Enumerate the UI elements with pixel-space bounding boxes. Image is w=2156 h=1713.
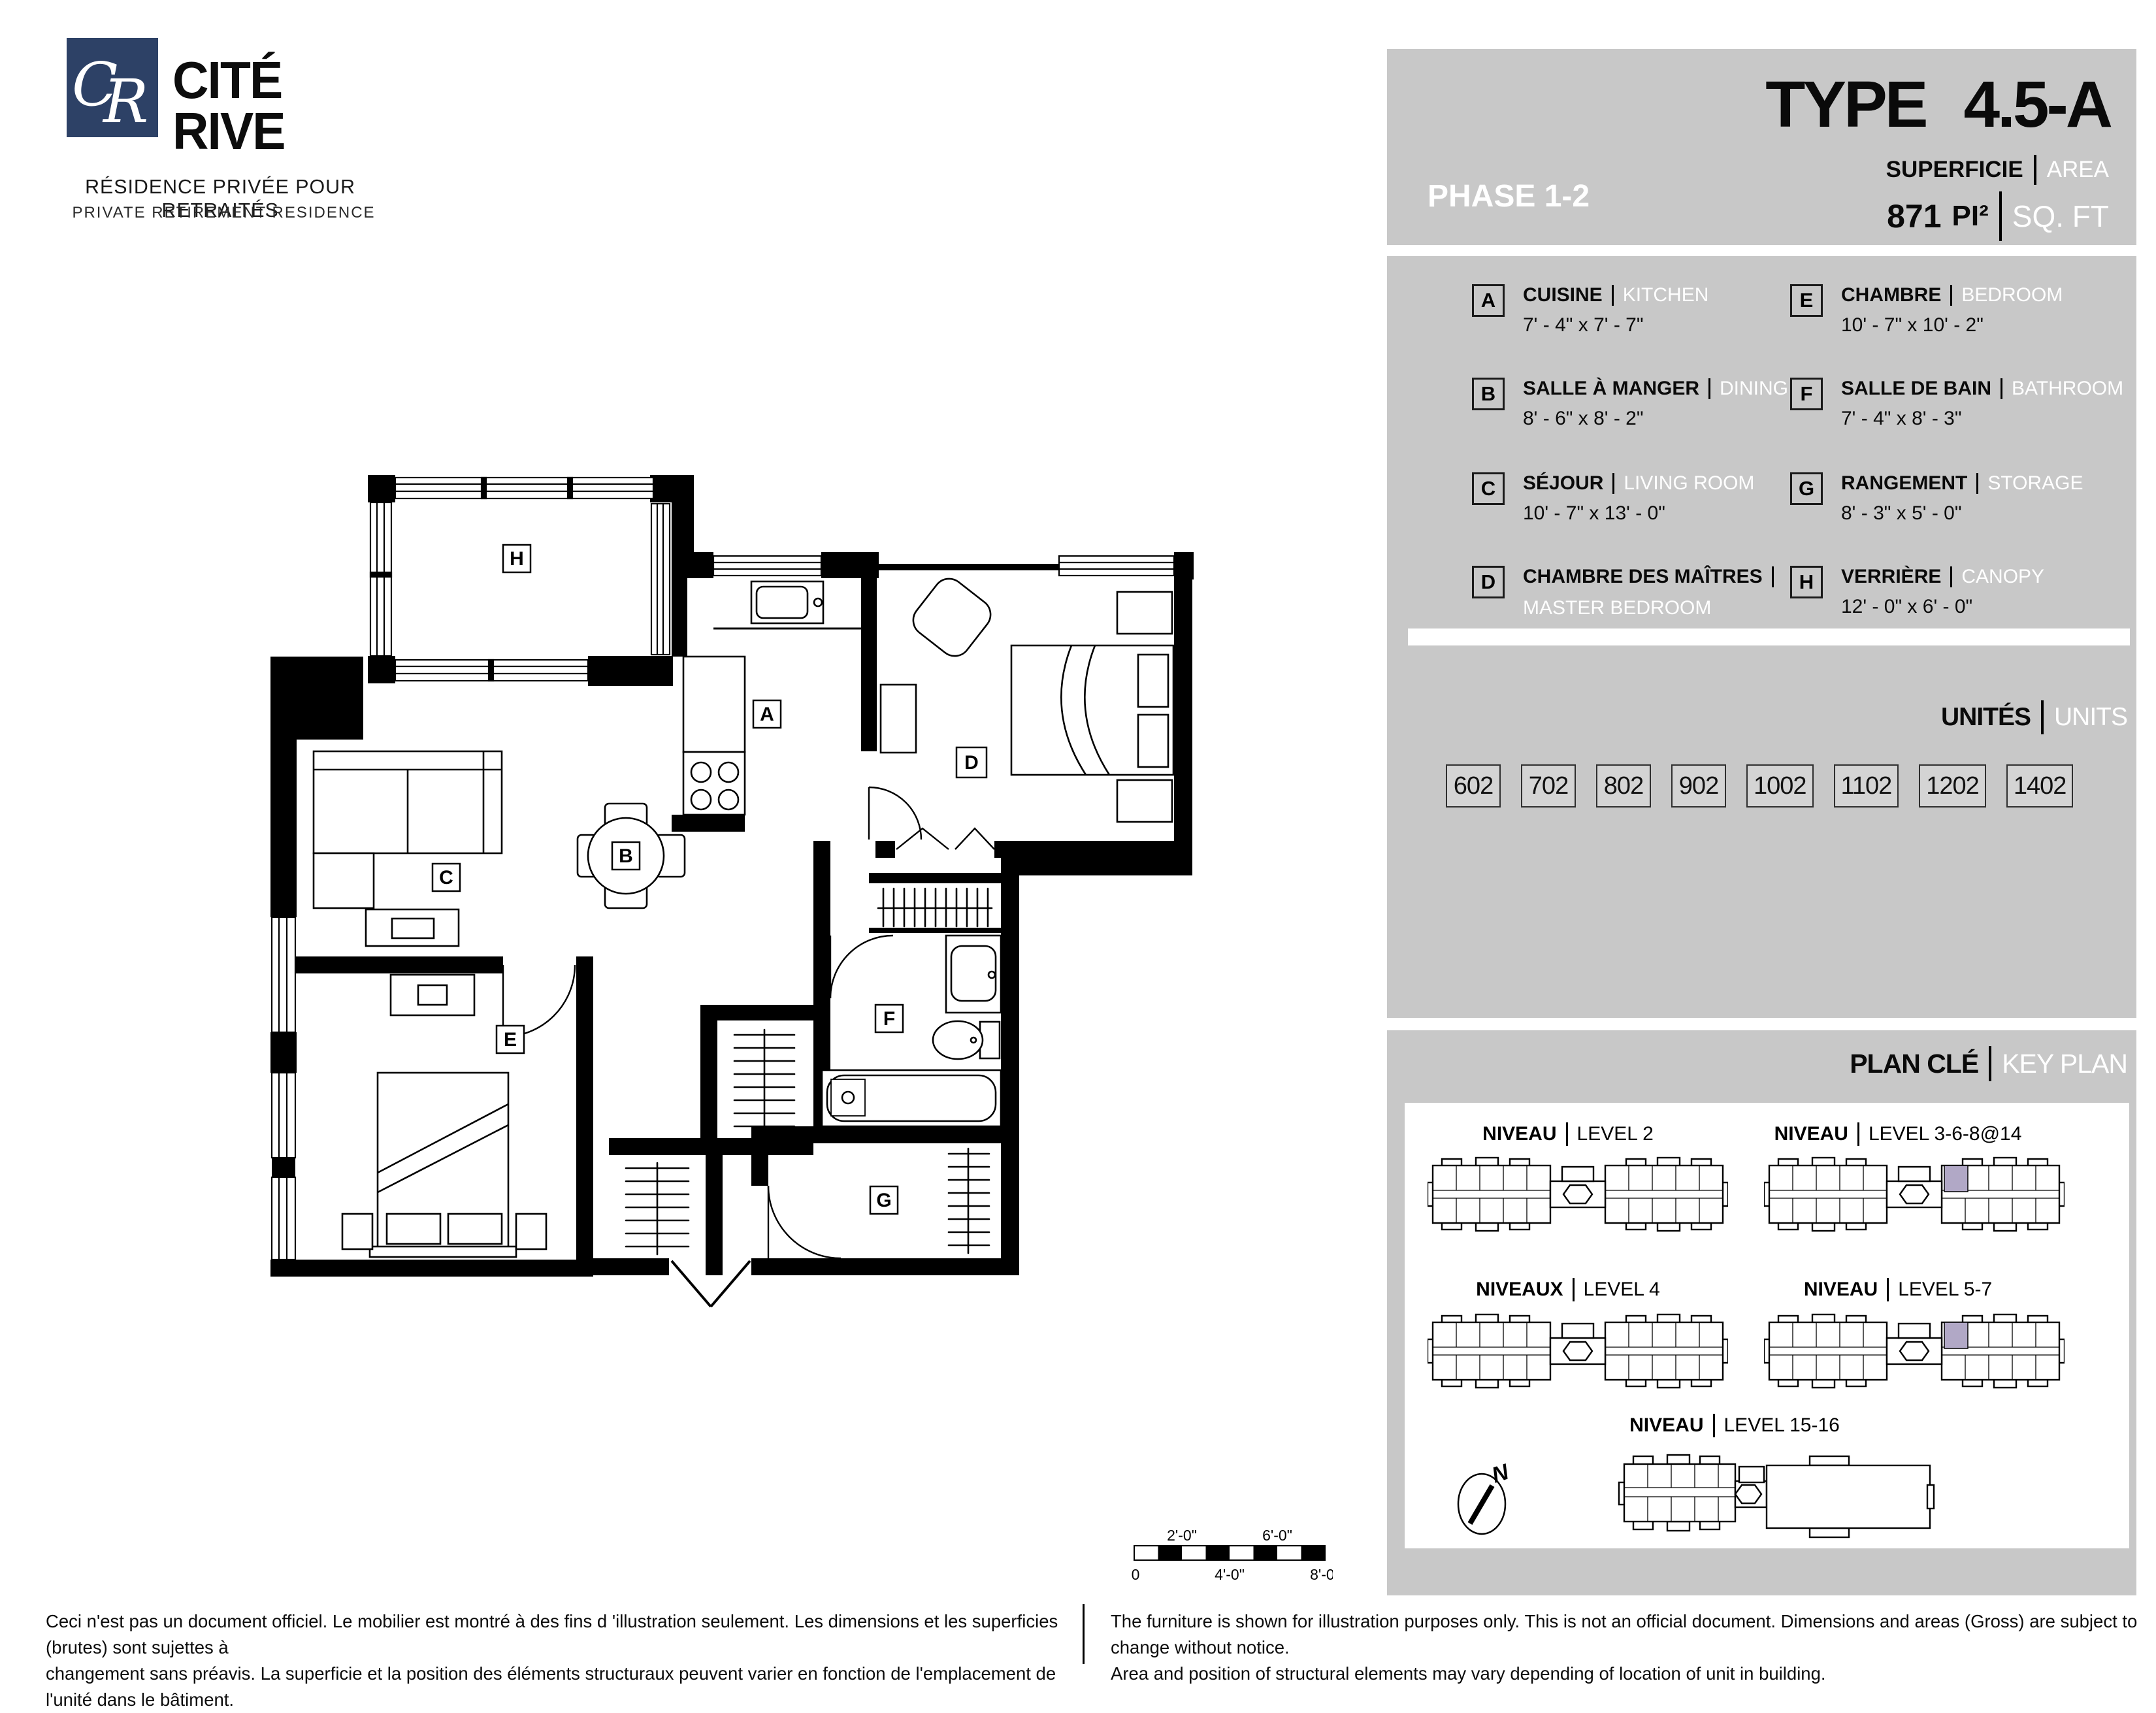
divider-bar [1950,285,1952,306]
highlighted-unit [1944,1166,1968,1192]
legend-dims: 7' - 4" x 7' - 7" [1523,314,1708,336]
legend-letter: D [1481,570,1495,594]
legend-name-fr: VERRIÈRE [1841,566,1941,588]
divider-bar [1713,1414,1715,1437]
legend-letter-box: A [1472,284,1505,317]
keyplan-label-fr: NIVEAU [1774,1123,1848,1145]
legend-name-en: BATHROOM [2012,378,2123,400]
disclaimer-divider [1083,1604,1085,1664]
legend-dims: 10' - 7" x 13' - 0" [1523,502,1754,525]
nightstand [516,1214,546,1249]
keyplan-label-level-2: NIVEAU LEVEL 2 [1431,1122,1705,1146]
legend-dims: 12' - 0" x 6' - 0" [1841,596,2044,618]
room-label-dining: B [619,845,633,867]
units-title-en: UNITS [2054,703,2127,732]
type-label: TYPE [1765,67,1925,142]
keyplan-label-fr: NIVEAU [1804,1279,1878,1301]
legend-letter: B [1481,382,1495,406]
area-unit-fr: PI² [1952,200,1989,233]
unit-number-list: 602 702 802 902 1002 1102 1202 1402 [1446,764,2073,808]
legend-row-storage: G RANGEMENTSTORAGE 8' - 3" x 5' - 0" [1790,472,2083,525]
keyplan-building-level-3-6-8 [1764,1156,2065,1232]
legend-name-fr: CUISINE [1523,284,1603,306]
keyplan-title-fr: PLAN CLÉ [1850,1049,1978,1079]
legend-dims: 8' - 3" x 5' - 0" [1841,502,2083,525]
legend-row-bedroom: E CHAMBREBEDROOM 10' - 7" x 10' - 2" [1790,284,2063,336]
keyplan-label-fr: NIVEAU [1629,1414,1703,1437]
room-label-master-bedroom: D [964,752,979,774]
dresser [881,685,916,753]
area-value-row: 871 PI² SQ. FT [1887,191,2109,241]
legend-row-canopy: H VERRIÈRECANOPY 12' - 0" x 6' - 0" [1790,566,2044,618]
nightstand [342,1214,372,1249]
keyplan-label-en: LEVEL 3-6-8@14 [1869,1123,2021,1145]
legend-letter-box: E [1790,284,1823,317]
keyplan-label-en: LEVEL 4 [1584,1279,1660,1301]
phase-label: PHASE 1-2 [1428,178,1590,214]
area-unit-en: SQ. FT [2012,199,2109,234]
superficie-label-en: AREA [2047,157,2109,183]
legend-row-living: C SÉJOURLIVING ROOM 10' - 7" x 13' - 0" [1472,472,1754,525]
scale-bar: 2'-0" 6'-0" 0 4'-0" 8'-0" [1130,1526,1333,1586]
scale-bar-segments [1134,1546,1325,1560]
room-label-living: C [439,867,453,889]
scale-label-6ft: 6'-0" [1262,1527,1292,1544]
keyplan-label-level-3-6-8: NIVEAU LEVEL 3-6-8@14 [1761,1122,2035,1146]
legend-row-kitchen: A CUISINEKITCHEN 7' - 4" x 7' - 7" [1472,284,1708,336]
legend-name-fr: SALLE DE BAIN [1841,378,1991,400]
units-heading: UNITÉS UNITS [1941,700,2127,734]
keyplan-label-fr: NIVEAUX [1476,1279,1563,1301]
keyplan-label-level-15-16: NIVEAU LEVEL 15-16 [1597,1414,1872,1437]
logo-monogram-r: R [103,67,148,137]
legend-dims: 8' - 6" x 8' - 2" [1523,408,1788,430]
area-value: 871 [1887,197,1941,235]
scale-label-8ft: 8'-0" [1310,1566,1333,1583]
unit-number: 902 [1671,764,1726,808]
keyplan-heading: PLAN CLÉ KEY PLAN [1850,1046,2127,1081]
legend-letter: E [1800,289,1814,312]
divider-bar [1887,1278,1889,1301]
nightstand [1117,592,1172,634]
legend-name-fr: CHAMBRE [1841,284,1941,306]
floor-plan: H A D C B E F G [248,457,1215,1346]
room-label-kitchen: A [760,704,774,725]
legend-row-dining: B SALLE À MANGERDINING 8' - 6" x 8' - 2" [1472,378,1788,430]
legend-letter-box: C [1472,472,1505,505]
legend-dims: 7' - 4" x 8' - 3" [1841,408,2123,430]
nightstand [1117,780,1172,822]
keyplan-label-en: LEVEL 2 [1577,1123,1654,1145]
legend-name-en: MASTER BEDROOM [1523,597,1774,619]
legend-name-fr: CHAMBRE DES MAÎTRES [1523,566,1763,588]
sofa [314,751,502,908]
vanity-sink [946,936,1001,1013]
unit-number: 702 [1521,764,1576,808]
divider-bar [1976,473,1978,494]
scale-label-2ft: 2'-0" [1167,1527,1197,1544]
logo-monogram-square: C R [67,38,158,137]
disclaimer-en-line1: The furniture is shown for illustration … [1111,1608,2143,1661]
legend-name-en: KITCHEN [1623,284,1709,306]
unit-number: 1002 [1746,764,1814,808]
logo-name-line1: CITÉ [172,55,285,106]
north-compass-icon: N [1450,1461,1522,1539]
legend-name-en: DINING [1720,378,1788,400]
keyplan-label-en: LEVEL 5-7 [1898,1279,1992,1301]
legend-name-en: STORAGE [1987,472,2083,495]
divider-bar [2001,378,2002,399]
armchair [907,572,997,662]
type-value: 4.5-A [1963,67,2110,142]
legend-name-en: CANOPY [1961,566,2044,588]
master-bed [1011,645,1173,775]
bedroom-dresser [391,975,474,1015]
legend-letter-box: G [1790,472,1823,505]
legend-letter-box: H [1790,566,1823,598]
keyplan-label-level-5-7: NIVEAU LEVEL 5-7 [1761,1278,2035,1301]
divider-bar [1999,191,2002,241]
divider-bar [1950,566,1952,587]
scale-label-4ft: 4'-0" [1215,1566,1245,1583]
unit-number: 1202 [1919,764,1986,808]
legend-letter: C [1481,477,1495,500]
unit-number: 1102 [1834,764,1899,808]
toilet [933,1021,1000,1059]
room-label-bedroom: E [504,1029,517,1051]
keyplan-building-level-4 [1428,1313,1728,1389]
superficie-label-fr: SUPERFICIE [1886,157,2023,183]
unit-number: 802 [1596,764,1651,808]
keyplan-label-level-4: NIVEAUX LEVEL 4 [1431,1278,1705,1301]
unit-number: 602 [1446,764,1501,808]
disclaimer-fr-line2: changement sans préavis. La superficie e… [46,1661,1065,1713]
legend-dims: 10' - 7" x 10' - 2" [1841,314,2063,336]
unit-number: 1402 [2006,764,2074,808]
keyplan-building-level-2 [1428,1156,1728,1232]
room-label-storage: G [876,1190,891,1211]
room-label-canopy: H [510,548,524,570]
header-panel: PHASE 1-2 TYPE 4.5-A SUPERFICIE AREA 871… [1387,49,2136,245]
legend-name-fr: SALLE À MANGER [1523,378,1699,400]
legend-letter: A [1481,289,1495,312]
divider-bar [1612,285,1614,306]
keyplan-label-fr: NIVEAU [1482,1123,1556,1145]
disclaimer-english: The furniture is shown for illustration … [1111,1608,2143,1687]
legend-letter: F [1801,382,1813,406]
divider-bar [1772,566,1774,587]
disclaimer-french: Ceci n'est pas un document officiel. Le … [46,1608,1065,1713]
divider-bar [1612,473,1614,494]
logo-name: CITÉ RIVE [172,55,285,157]
highlighted-unit [1944,1322,1968,1348]
kitchen-counter [683,657,745,752]
unit-type-title: TYPE 4.5-A [1765,67,2110,142]
divider-bar [1857,1122,1859,1146]
keyplan-building-level-15-16 [1614,1447,1950,1539]
legend-letter-box: D [1472,566,1505,598]
kitchen-sink [713,581,870,628]
keyplan-label-en: LEVEL 15-16 [1724,1414,1840,1437]
stove [683,752,745,815]
bedroom-bed [370,1073,516,1257]
legend-name-fr: SÉJOUR [1523,472,1603,495]
keyplan-title-en: KEY PLAN [2002,1049,2127,1079]
section-divider [1408,628,2130,645]
compass-n-label: N [1489,1461,1512,1488]
scale-label-0: 0 [1132,1566,1140,1583]
legend-letter-box: B [1472,378,1505,410]
divider-bar [1566,1122,1568,1146]
keyplan-building-level-5-7 [1764,1313,2065,1389]
legend-name-en: BEDROOM [1961,284,2063,306]
keyplan-panel: PLAN CLÉ KEY PLAN [1387,1030,2136,1595]
units-title-fr: UNITÉS [1941,703,2031,732]
legend-name-en: LIVING ROOM [1624,472,1754,495]
divider-bar [1989,1046,1991,1081]
bathtub [822,1070,1001,1126]
logo-tagline-en: PRIVATE RETIREMENT RESIDENCE [46,204,402,222]
divider-bar [1573,1278,1575,1301]
legend-row-bathroom: F SALLE DE BAINBATHROOM 7' - 4" x 8' - 3… [1790,378,2123,430]
superficie-row: SUPERFICIE AREA [1886,155,2109,185]
divider-bar [1708,378,1710,399]
room-label-bathroom: F [883,1008,895,1030]
divider-bar [2041,700,2044,734]
keyplan-canvas: NIVEAU LEVEL 2 NIVEAU LEVEL 3-6-8@14 NIV… [1405,1103,2129,1548]
logo-name-line2: RIVE [172,106,285,157]
legend-letter-box: F [1790,378,1823,410]
legend-panel: A CUISINEKITCHEN 7' - 4" x 7' - 7" B SAL… [1387,256,2136,1018]
tv-console [366,909,459,946]
disclaimer-en-line2: Area and position of structural elements… [1111,1661,2143,1687]
legend-name-fr: RANGEMENT [1841,472,1967,495]
legend-letter: G [1799,477,1814,500]
divider-bar [2034,155,2036,185]
disclaimer-fr-line1: Ceci n'est pas un document officiel. Le … [46,1608,1065,1661]
legend-letter: H [1799,570,1814,594]
brand-logo: C R CITÉ RIVE RÉSIDENCE PRIVÉE POUR RETR… [0,0,457,235]
